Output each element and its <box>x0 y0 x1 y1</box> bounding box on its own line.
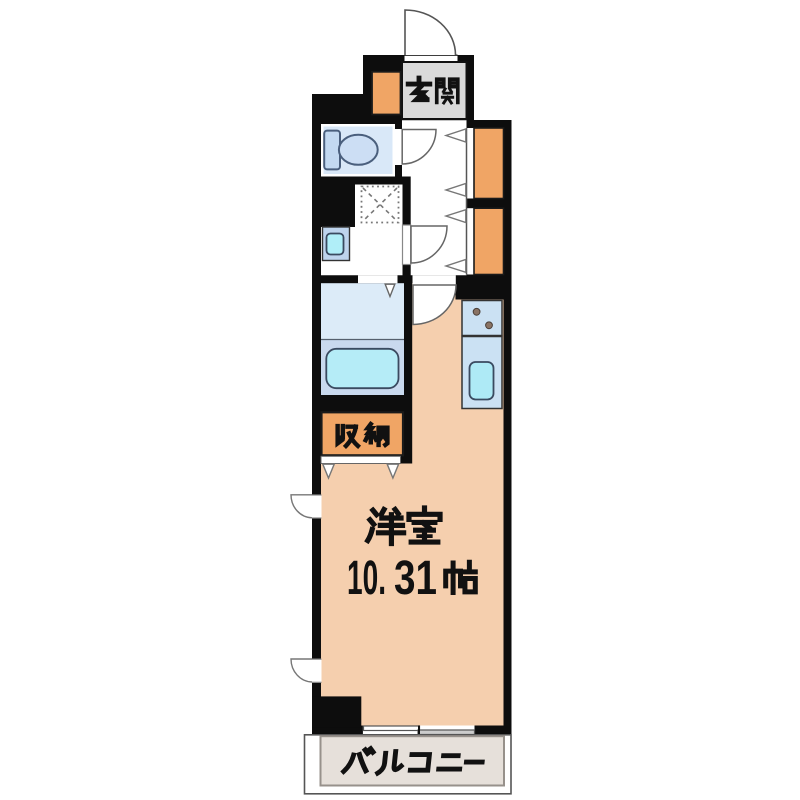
svg-text:10.: 10. <box>347 552 386 605</box>
svg-text:31: 31 <box>394 552 437 605</box>
